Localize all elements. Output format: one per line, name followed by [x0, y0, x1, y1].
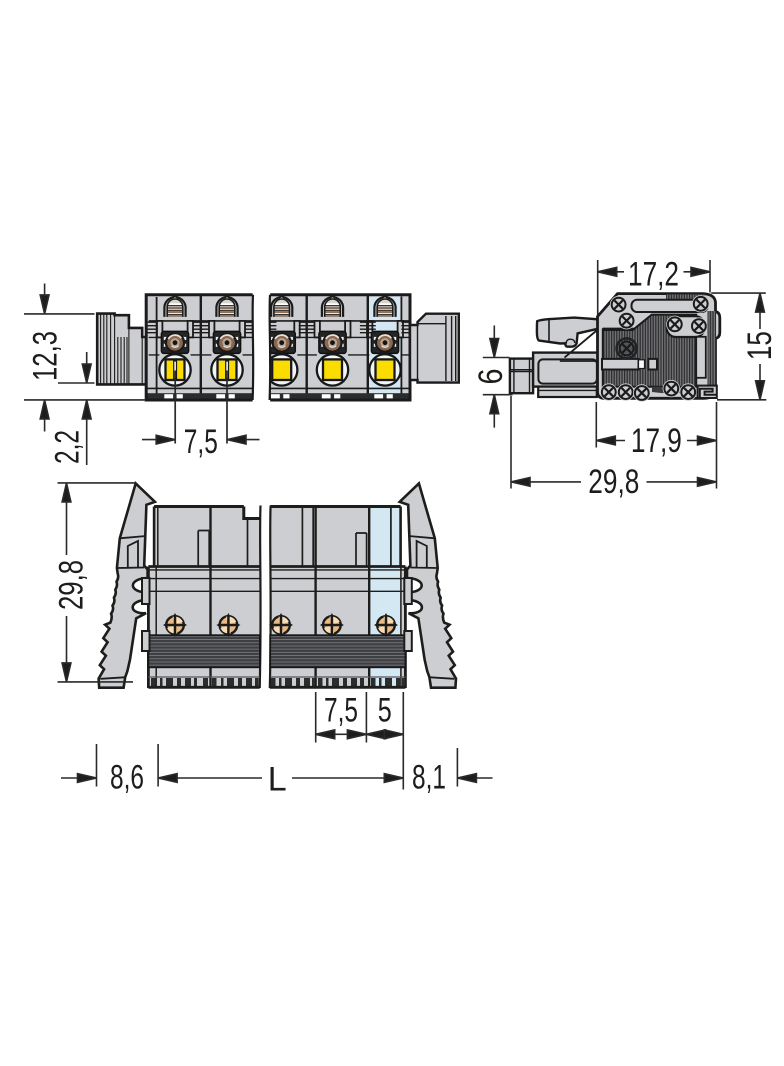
svg-text:8,6: 8,6 [110, 759, 144, 797]
svg-text:8,1: 8,1 [412, 759, 446, 797]
svg-text:12,3: 12,3 [27, 331, 65, 381]
svg-text:29,8: 29,8 [52, 560, 90, 610]
svg-text:L: L [268, 761, 287, 799]
svg-text:5: 5 [378, 692, 392, 730]
svg-text:2,2: 2,2 [49, 430, 87, 464]
svg-text:6: 6 [472, 369, 510, 385]
svg-text:15: 15 [741, 331, 779, 360]
svg-text:7,5: 7,5 [324, 692, 358, 730]
svg-text:17,9: 17,9 [631, 422, 682, 460]
svg-text:17,2: 17,2 [628, 255, 679, 293]
svg-text:7,5: 7,5 [184, 423, 218, 461]
svg-text:29,8: 29,8 [588, 463, 639, 501]
